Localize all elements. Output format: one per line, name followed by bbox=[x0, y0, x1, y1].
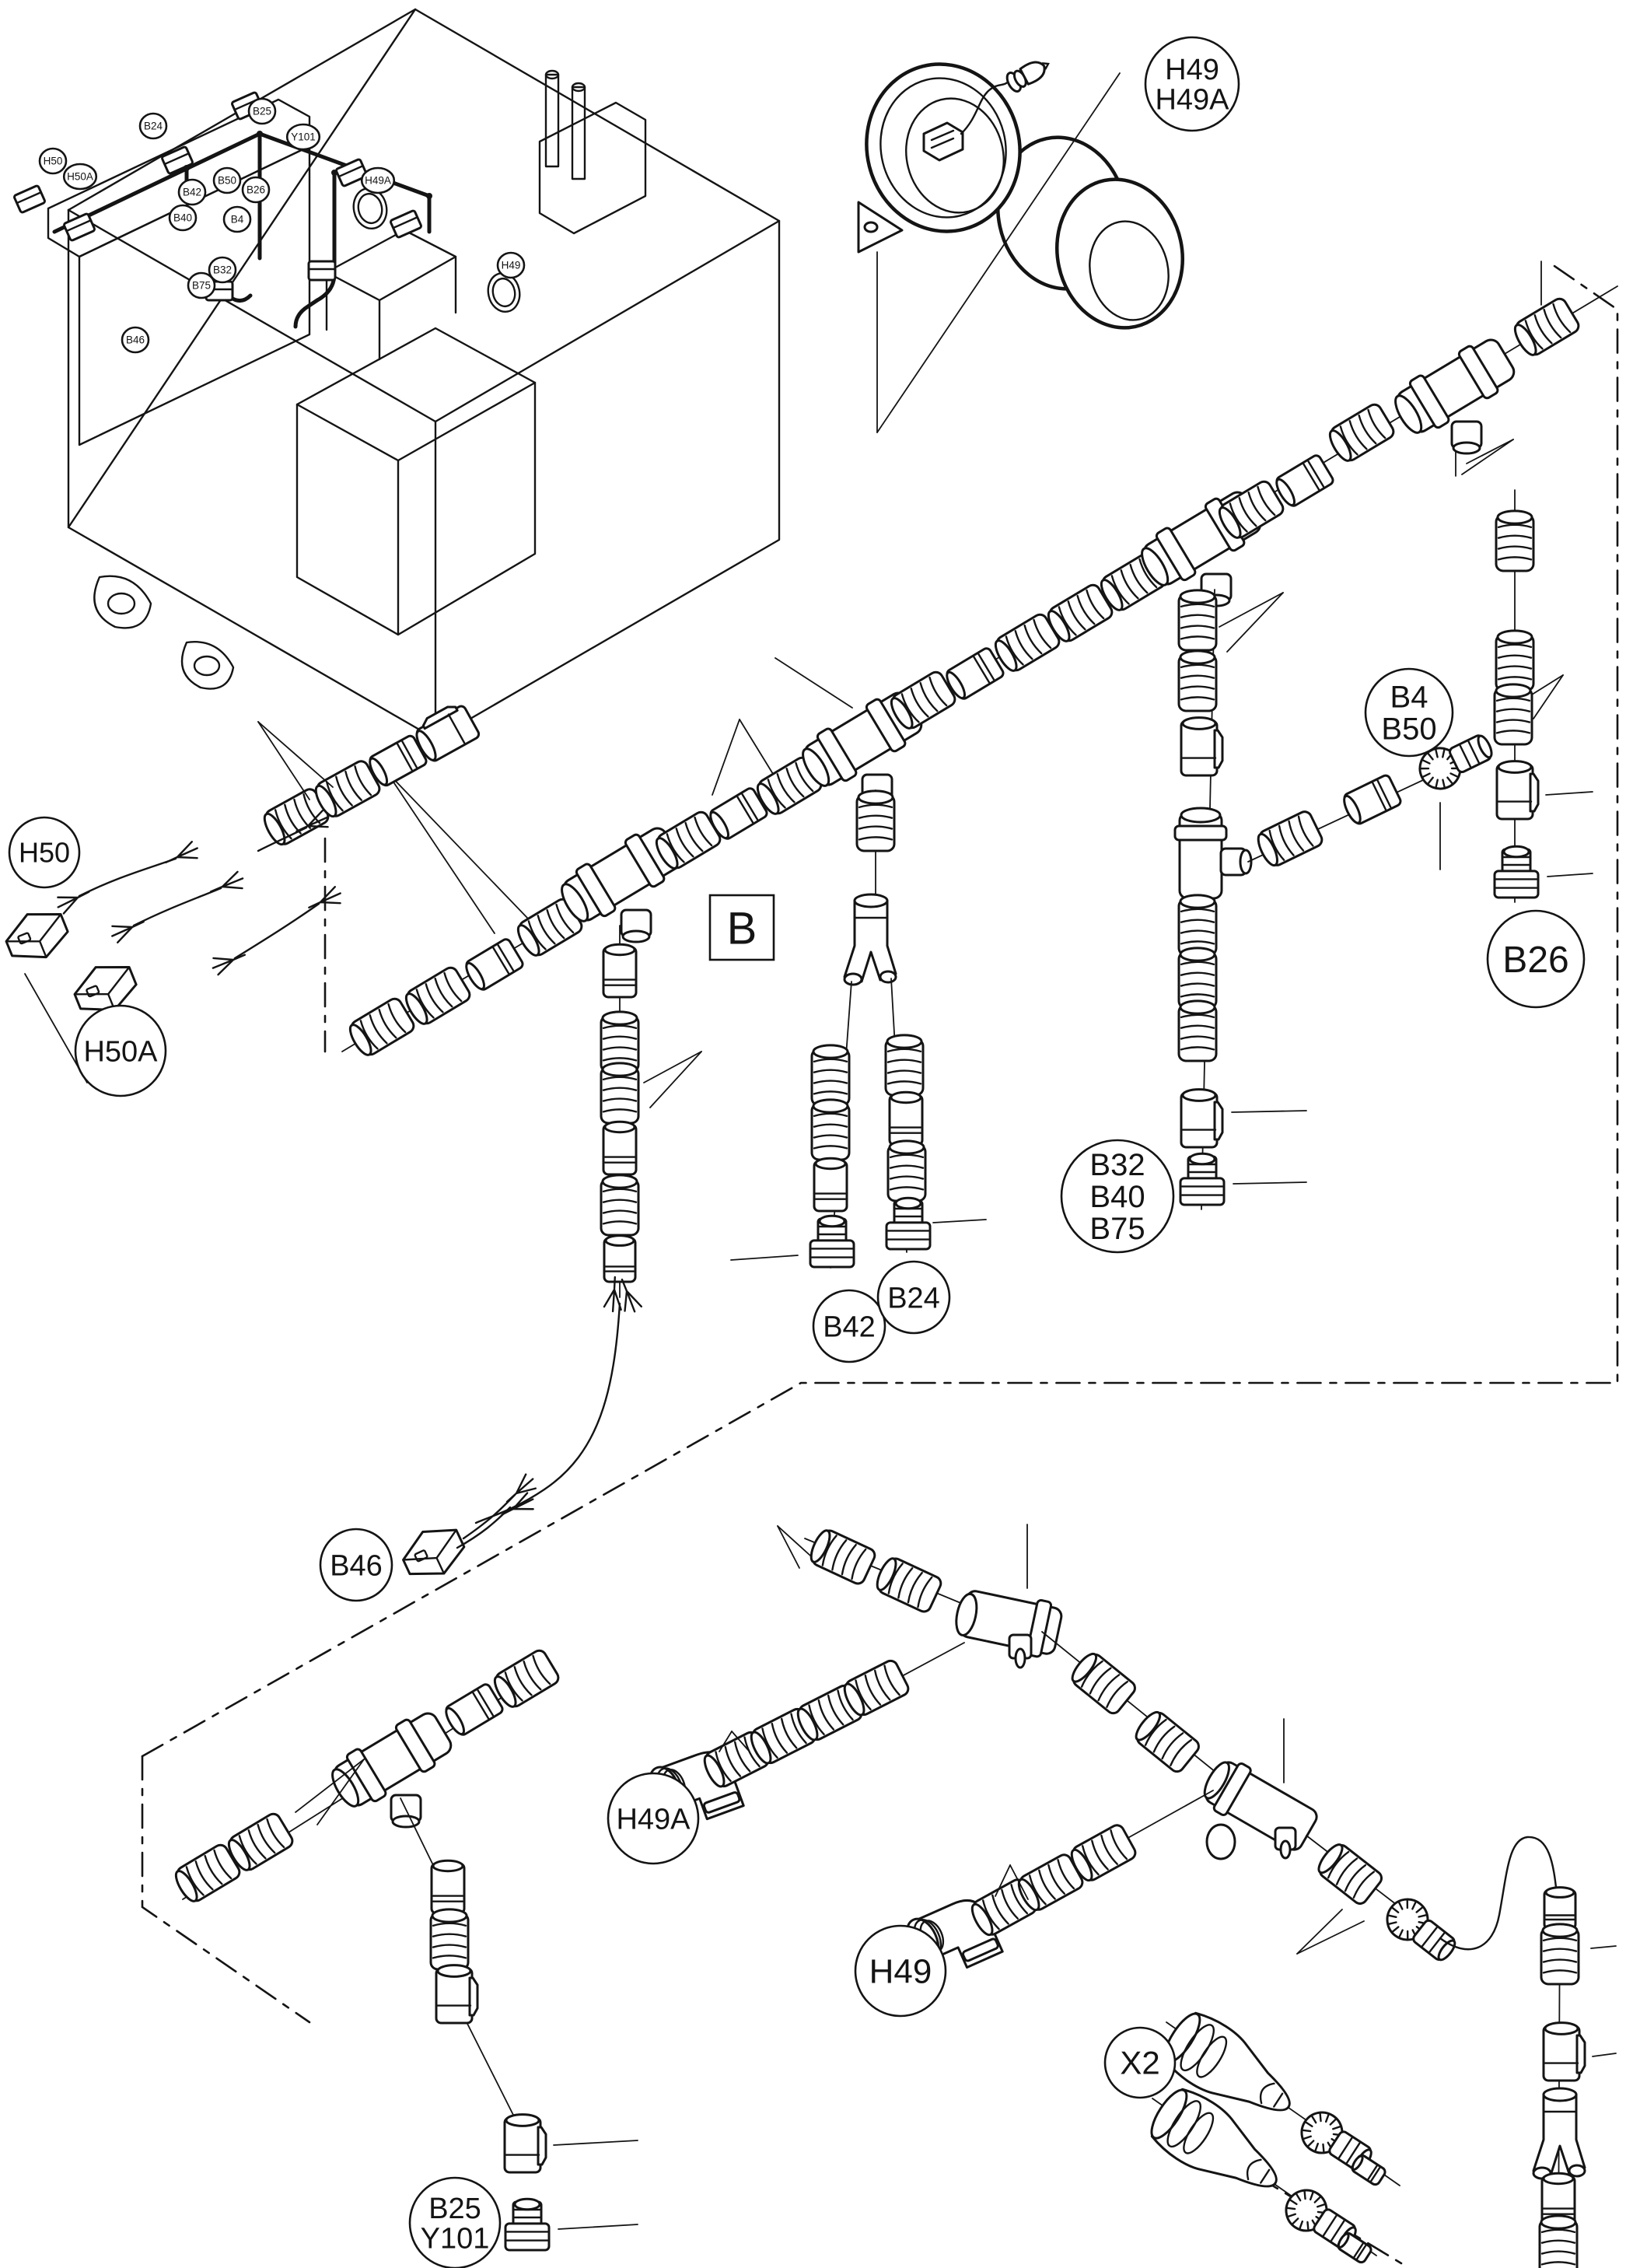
reference-callouts: H49H49AB4B50B26H50H50AB32B40B75B42B24B46… bbox=[9, 37, 1584, 2268]
callout-h50a: H50A bbox=[75, 1006, 166, 1096]
svg-text:B: B bbox=[727, 903, 757, 954]
svg-text:B25: B25 bbox=[428, 2193, 481, 2225]
machine-label-h50: H50 bbox=[40, 149, 66, 173]
svg-text:Y101: Y101 bbox=[291, 131, 316, 143]
svg-text:B75: B75 bbox=[1089, 1212, 1145, 1246]
svg-text:B42: B42 bbox=[183, 187, 201, 198]
svg-text:B26: B26 bbox=[1502, 940, 1568, 981]
svg-text:B75: B75 bbox=[192, 280, 211, 292]
svg-text:Y101: Y101 bbox=[421, 2223, 490, 2256]
machine-inset-labels: H50H50AB24B25Y101B42B50B26B4B40B32B75B46… bbox=[40, 99, 524, 352]
parts-diagram-canvas: H50H50AB24B25Y101B42B50B26B4B40B32B75B46… bbox=[0, 0, 1626, 2268]
svg-text:B46: B46 bbox=[126, 334, 145, 346]
machine-label-b46: B46 bbox=[122, 327, 149, 352]
svg-text:B40: B40 bbox=[1089, 1180, 1145, 1214]
svg-text:B4: B4 bbox=[231, 214, 244, 226]
svg-text:B42: B42 bbox=[823, 1311, 876, 1343]
svg-text:H49A: H49A bbox=[616, 1803, 691, 1836]
svg-text:B40: B40 bbox=[173, 212, 192, 224]
machine-label-b50: B50 bbox=[214, 168, 240, 193]
svg-text:B32: B32 bbox=[213, 264, 232, 276]
callout-x2: X2 bbox=[1105, 2028, 1175, 2098]
svg-text:B50: B50 bbox=[1381, 712, 1436, 746]
machine-label-b4: B4 bbox=[224, 207, 250, 232]
callout-b46: B46 bbox=[320, 1529, 392, 1601]
diagram-page: Electrical harness exploded parts diagra… bbox=[0, 0, 1626, 2268]
machine-label-h49a: H49A bbox=[362, 168, 394, 193]
upper-harness-exploded bbox=[0, 261, 1617, 1587]
callout-b26: B26 bbox=[1488, 911, 1584, 1007]
callout-h49a-lower: H49A bbox=[608, 1773, 698, 1864]
detail-box-label: B bbox=[710, 895, 774, 960]
machine-label-b25: B25 bbox=[249, 99, 275, 124]
callout-h49-h49a-top: H49H49A bbox=[1145, 37, 1239, 131]
svg-text:H49: H49 bbox=[869, 1952, 932, 1990]
svg-text:B25: B25 bbox=[253, 106, 271, 117]
callout-b32-b40-b75: B32B40B75 bbox=[1061, 1140, 1173, 1252]
svg-text:H50: H50 bbox=[19, 837, 70, 869]
callout-h50: H50 bbox=[9, 817, 79, 887]
machine-label-h50a: H50A bbox=[64, 164, 96, 189]
callout-h49-lower: H49 bbox=[855, 1926, 946, 2016]
callout-b25-y101: B25Y101 bbox=[410, 2178, 500, 2268]
svg-text:X2: X2 bbox=[1120, 2045, 1159, 2081]
svg-text:H50A: H50A bbox=[83, 1035, 158, 1068]
svg-text:H50A: H50A bbox=[67, 171, 93, 183]
svg-text:B24: B24 bbox=[144, 121, 163, 132]
machine-label-b75: B75 bbox=[188, 273, 215, 298]
svg-text:B32: B32 bbox=[1089, 1148, 1145, 1182]
svg-text:H50: H50 bbox=[44, 156, 63, 167]
svg-text:H49A: H49A bbox=[1155, 84, 1229, 117]
svg-text:H49A: H49A bbox=[365, 175, 391, 187]
machine-label-b42: B42 bbox=[179, 180, 205, 205]
machine-label-h49: H49 bbox=[498, 253, 524, 278]
svg-text:H49: H49 bbox=[502, 260, 521, 271]
svg-text:B26: B26 bbox=[247, 184, 265, 196]
svg-text:B24: B24 bbox=[887, 1282, 940, 1314]
callout-b4-b50: B4B50 bbox=[1365, 669, 1453, 756]
machine-label-y101: Y101 bbox=[287, 124, 320, 149]
svg-text:H49: H49 bbox=[1165, 54, 1219, 86]
machine-label-b26: B26 bbox=[243, 177, 269, 202]
svg-text:B46: B46 bbox=[330, 1549, 383, 1582]
machine-label-b40: B40 bbox=[170, 205, 196, 230]
headlamp-assembly bbox=[849, 47, 1196, 432]
callout-b24: B24 bbox=[878, 1262, 949, 1333]
machine-inset bbox=[14, 9, 779, 739]
lower-harness-exploded bbox=[171, 1524, 1616, 2268]
machine-label-b24: B24 bbox=[140, 114, 166, 138]
svg-text:B4: B4 bbox=[1390, 681, 1428, 715]
svg-text:B50: B50 bbox=[218, 175, 236, 187]
callout-b42: B42 bbox=[813, 1290, 885, 1362]
